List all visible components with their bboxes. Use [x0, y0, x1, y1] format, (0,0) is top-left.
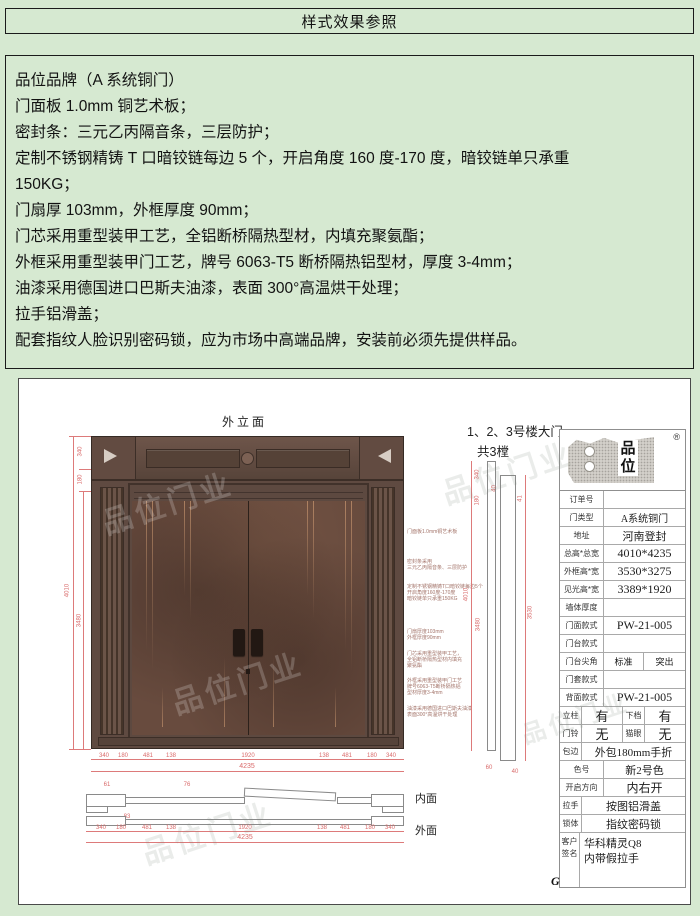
dim-label: 180 — [78, 470, 85, 490]
table-row: 开启方向内右开 — [560, 779, 685, 797]
dim-line — [69, 436, 91, 437]
triangle-ornament-icon — [104, 449, 117, 463]
door-keyhole — [246, 669, 250, 674]
row-label: 门台款式 — [560, 635, 604, 652]
table-row: 门铃无猫眼无 — [560, 725, 685, 743]
dim-label: 481 — [137, 825, 157, 832]
spec-line: 门扇厚 103mm，外框厚度 90mm； — [15, 198, 683, 224]
dim-line — [471, 461, 472, 751]
row-label: 门面款式 — [560, 617, 604, 634]
spec-line: 门芯采用重型装甲工艺，全铝断桥隔热型材，内填充聚氨酯； — [15, 224, 683, 250]
door-pilaster-left — [100, 487, 124, 735]
row-value — [604, 599, 685, 616]
dim-label: 180 — [111, 825, 131, 832]
callout-note: 门芯采用重型装甲工艺， 全铝断桥隔热型材内填充 聚氨酯 — [407, 651, 487, 669]
door-accent-line — [335, 687, 336, 727]
registered-trademark-icon: ® — [673, 432, 680, 442]
table-row: 背面款式PW-21-005 — [560, 689, 685, 707]
door-accent-line — [307, 501, 308, 596]
table-row: 门套款式 — [560, 671, 685, 689]
dim-label-total: 4235 — [230, 834, 260, 841]
dim-label: 340 — [78, 442, 85, 462]
row-value — [604, 635, 685, 652]
triangle-ornament-icon — [378, 449, 391, 463]
table-row: 锁体指纹密码锁 — [560, 815, 685, 833]
row-label: 门铃 — [560, 725, 582, 742]
dim-label: 180 — [362, 753, 382, 760]
row-label: 订单号 — [560, 491, 604, 508]
page-title: 样式效果参照 — [301, 11, 397, 32]
door-pilaster-right — [371, 487, 395, 735]
row-value: 指纹密码锁 — [582, 815, 685, 832]
row-value: A系统铜门 — [604, 509, 685, 526]
door-header-panel-left — [146, 449, 240, 468]
door-center-emblem — [241, 452, 254, 465]
dim-label: 1920 — [234, 825, 256, 832]
dim-label: 1920 — [237, 753, 259, 760]
row-label: 下档 — [623, 707, 645, 724]
plan-piece — [337, 797, 373, 804]
dim-line — [69, 749, 91, 750]
door-accent-line — [224, 657, 225, 727]
table-row: 拉手按图铝滑盖 — [560, 797, 685, 815]
row-value: 外包180mm手折 — [582, 743, 685, 760]
row-value: 无 — [645, 725, 685, 742]
row-label: 门台尖角 — [560, 653, 604, 670]
building-note-line2: 共3樘 — [477, 441, 509, 460]
door-bottom-rail — [98, 737, 399, 746]
row-label: 门类型 — [560, 509, 604, 526]
dim-label: 340 — [94, 753, 114, 760]
spec-sheet-page: 样式效果参照 品位品牌（A 系统铜门） 门面板 1.0mm 铜艺术板； 密封条：… — [0, 0, 700, 916]
door-leaves — [132, 501, 365, 735]
building-note-line1: 1、2、3号楼大门 — [467, 421, 563, 440]
dim-label: 4010 — [464, 583, 471, 607]
title-block: 品位 ® 订单号 门类型A系统铜门 地址河南登封 总高*总宽4010*4235 … — [559, 429, 686, 888]
inner-face-label: 内面 — [415, 790, 437, 806]
row-value — [604, 491, 685, 508]
door-accent-line — [190, 501, 191, 619]
plan-piece — [382, 806, 404, 813]
dim-label: 3530 — [528, 601, 535, 625]
table-row: 门台款式 — [560, 635, 685, 653]
door-elevation — [91, 436, 404, 749]
table-row: 总高*总宽4010*4235 — [560, 545, 685, 563]
row-label: 总高*总宽 — [560, 545, 604, 562]
row-label: 墙体厚度 — [560, 599, 604, 616]
row-value: PW-21-005 — [604, 689, 685, 706]
callout-note: 油漆采用德国进口巴斯夫油漆 表面300°高温烘干处理 — [407, 706, 487, 718]
row-value: 河南登封 — [604, 527, 685, 544]
brand-name: 品位 — [618, 440, 638, 476]
row-label: 开启方向 — [560, 779, 604, 796]
row-label: 包边 — [560, 743, 582, 760]
logo-hole — [584, 446, 595, 457]
dim-label: 138 — [161, 825, 181, 832]
row-label: 背面款式 — [560, 689, 604, 706]
dim-line — [86, 842, 404, 843]
section-profile-leaf — [500, 475, 516, 761]
door-accent-line — [273, 657, 274, 727]
dim-label: 180 — [360, 825, 380, 832]
dim-label: 481 — [337, 753, 357, 760]
dim-label: 40 — [492, 481, 499, 497]
door-top-band — [92, 437, 403, 481]
dim-line — [525, 475, 526, 761]
dim-label: 4010 — [65, 579, 72, 603]
row-value — [604, 671, 685, 688]
dim-label-total: 4235 — [232, 763, 262, 770]
table-row: 见光高*宽3389*1920 — [560, 581, 685, 599]
callout-note: 外框采用重型装甲门工艺 牌号6063-T5断桥隔热铝 型材厚度3-4mm — [407, 678, 487, 696]
dim-line — [91, 771, 404, 772]
dim-label: 340 — [475, 465, 482, 485]
plan-piece — [86, 806, 108, 813]
dim-label: 3480 — [476, 613, 483, 637]
row-value: 新2号色 — [604, 761, 685, 778]
dim-label: 76 — [179, 782, 195, 789]
section-profile-frame — [487, 461, 496, 751]
door-accent-line — [162, 687, 163, 727]
door-center-seam — [248, 501, 249, 735]
sheet-corner-letter: G — [551, 874, 560, 889]
row-label: 立柱 — [560, 707, 582, 724]
page-title-box: 样式效果参照 — [5, 8, 694, 34]
dim-label: 40 — [507, 769, 523, 776]
logo-hole — [584, 461, 595, 472]
door-header-panel-right — [256, 449, 350, 468]
spec-line: 拉手铝滑盖； — [15, 302, 683, 328]
door-accent-line — [345, 501, 346, 651]
row-label: 锁体 — [560, 815, 582, 832]
spec-line: 密封条：三元乙丙隔音条，三层防护； — [15, 120, 683, 146]
row-value: 4010*4235 — [604, 545, 685, 562]
table-row: 立柱有下档有 — [560, 707, 685, 725]
dim-label: 340 — [381, 753, 401, 760]
callout-note: 定制不锈钢精铸T口暗铰链每边5个 开启角度160度-170度 暗铰链单只承重15… — [407, 584, 487, 602]
dim-label: 3480 — [77, 609, 84, 633]
row-label: 地址 — [560, 527, 604, 544]
row-label: 见光高*宽 — [560, 581, 604, 598]
dim-label: 138 — [314, 753, 334, 760]
table-row: 墙体厚度 — [560, 599, 685, 617]
door-corner-block-left — [92, 437, 136, 479]
spec-line: 门面板 1.0mm 铜艺术板； — [15, 94, 683, 120]
spec-line: 油漆采用德国进口巴斯夫油漆，表面 300°高温烘干处理； — [15, 276, 683, 302]
spec-line: 150KG； — [15, 172, 683, 198]
table-row: 包边外包180mm手折 — [560, 743, 685, 761]
table-row: 门台尖角标准突出 — [560, 653, 685, 671]
elevation-title: 外立面 — [222, 413, 267, 430]
door-accent-line — [146, 501, 147, 651]
table-row: 门面款式PW-21-005 — [560, 617, 685, 635]
drawing-panel: 外立面 1、2、3号楼大门 共3樘 — [18, 378, 691, 905]
row-label: 客户签名 — [560, 833, 580, 887]
row-value: PW-21-005 — [604, 617, 685, 634]
row-label: 拉手 — [560, 797, 582, 814]
row-value: 标准 — [604, 653, 644, 670]
dim-label: 340 — [91, 825, 111, 832]
dim-label: 61 — [99, 782, 115, 789]
spec-line: 外框采用重型装甲门工艺，牌号 6063-T5 断桥隔热铝型材，厚度 3-4mm； — [15, 250, 683, 276]
row-label: 猫眼 — [623, 725, 645, 742]
table-row: 色号新2号色 — [560, 761, 685, 779]
row-value: 有 — [645, 707, 685, 724]
dim-line — [73, 436, 74, 749]
plan-piece-open-leaf — [244, 788, 336, 802]
outer-face-label: 外面 — [415, 822, 437, 838]
dim-label: 180 — [475, 491, 482, 511]
row-value: 突出 — [644, 653, 685, 670]
table-row: 外框高*宽3530*3275 — [560, 563, 685, 581]
dim-label: 180 — [113, 753, 133, 760]
table-row: 订单号 — [560, 491, 685, 509]
door-handle-left — [233, 629, 245, 656]
dim-label: 481 — [335, 825, 355, 832]
brand-logo: 品位 ® — [560, 430, 685, 491]
spec-line: 品位品牌（A 系统铜门） — [15, 68, 683, 94]
dim-label: 138 — [161, 753, 181, 760]
row-value: 3530*3275 — [604, 563, 685, 580]
row-value: 华科精灵Q8 内带假拉手 — [580, 833, 685, 887]
door-accent-line — [152, 501, 153, 671]
dim-label: 138 — [312, 825, 332, 832]
spec-line: 配套指纹人脸识别密码锁，应为市场中高端品牌，安装前必须先提供样品。 — [15, 328, 683, 354]
row-value: 内右开 — [604, 779, 685, 796]
door-corner-block-right — [359, 437, 403, 479]
dim-label: 340 — [380, 825, 400, 832]
door-accent-line — [313, 501, 314, 619]
row-label: 色号 — [560, 761, 604, 778]
door-inner-line — [134, 492, 363, 493]
door-accent-line — [184, 501, 185, 596]
row-value: 按图铝滑盖 — [582, 797, 685, 814]
door-handle-right — [251, 629, 263, 656]
dim-label: 481 — [138, 753, 158, 760]
dim-line — [79, 491, 91, 492]
dim-label: 60 — [481, 765, 497, 772]
callout-note: 门面板1.0mm铜艺术板 — [407, 529, 487, 535]
spec-line: 定制不锈钢精铸 T 口暗铰链每边 5 个，开启角度 160 度-170 度，暗铰… — [15, 146, 683, 172]
spec-paragraph: 品位品牌（A 系统铜门） 门面板 1.0mm 铜艺术板； 密封条：三元乙丙隔音条… — [5, 55, 694, 369]
callout-note: 密封条采用 三元乙丙隔音条、三层防护 — [407, 559, 487, 571]
row-value: 无 — [582, 725, 623, 742]
door-accent-line — [351, 501, 352, 671]
row-label: 门套款式 — [560, 671, 604, 688]
brand-logo-mark — [568, 437, 654, 483]
row-value: 3389*1920 — [604, 581, 685, 598]
table-row: 门类型A系统铜门 — [560, 509, 685, 527]
table-row-signature: 客户签名华科精灵Q8 内带假拉手 — [560, 833, 685, 887]
row-label: 外框高*宽 — [560, 563, 604, 580]
door-inner-line — [134, 498, 363, 499]
dim-label: 41 — [518, 491, 525, 507]
table-row: 地址河南登封 — [560, 527, 685, 545]
row-value: 有 — [582, 707, 623, 724]
plan-piece — [125, 797, 245, 804]
